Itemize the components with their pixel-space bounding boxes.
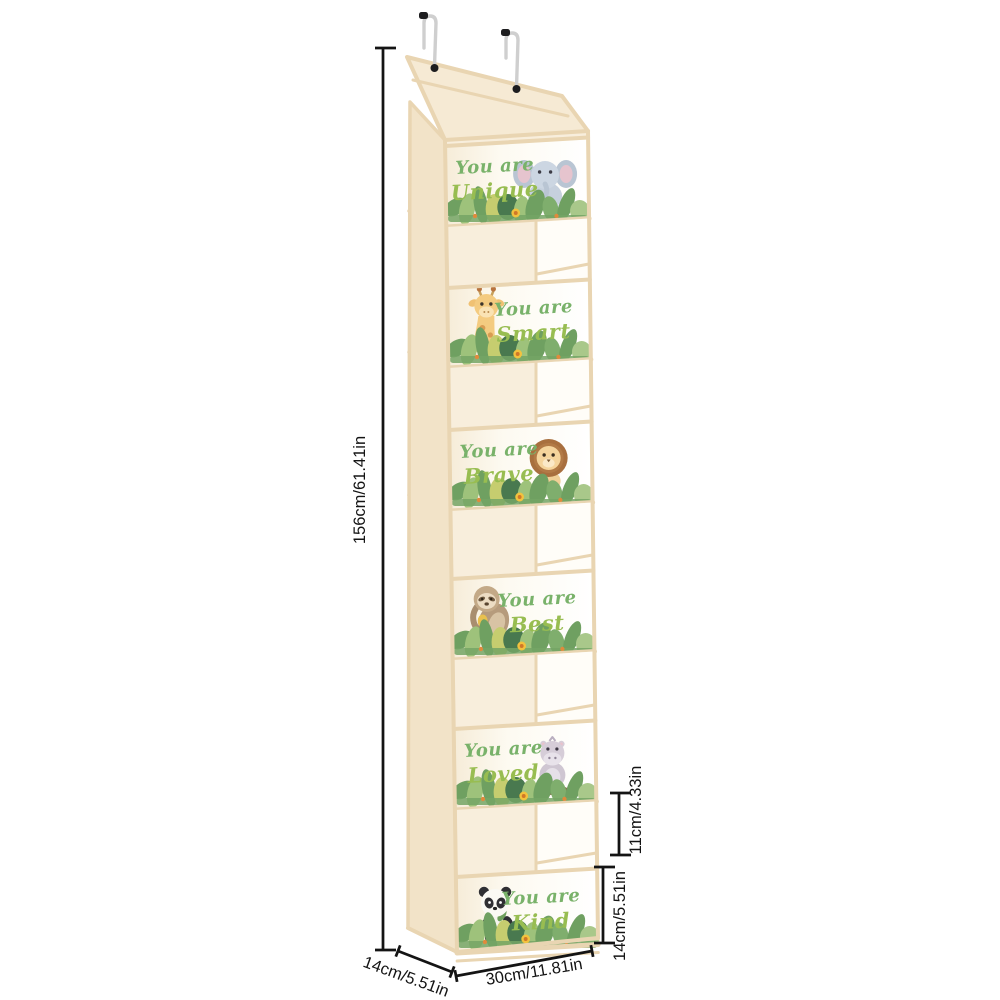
pocket-height-dimension-label: 14cm/5.51in <box>611 871 629 961</box>
pocket-caption-line1: You are <box>464 737 544 762</box>
hook-door-cap <box>501 29 510 36</box>
pocket-gap-dimension-label: 11cm/4.33in <box>627 766 645 855</box>
pocket-caption-line2: Kind <box>510 908 570 936</box>
organizer: You areUniqueYou areSmartYou areBraveYou… <box>407 12 599 961</box>
height-dimension-label: 156cm/61.41in <box>351 436 369 544</box>
depth-dimension-label: 14cm/5.51in <box>361 953 452 1000</box>
product-dimension-diagram: You areUniqueYou areSmartYou areBraveYou… <box>0 0 1000 1000</box>
hook-mount-knob <box>431 64 439 72</box>
pocket-caption-line1: You are <box>459 438 539 463</box>
hook-door-cap <box>419 12 428 19</box>
pocket-caption-line2: Loved <box>466 759 540 788</box>
pocket-caption-line1: You are <box>455 154 535 179</box>
depth-dimension: 14cm/5.51in <box>361 945 455 1000</box>
hook-mount-knob <box>513 85 521 93</box>
frame-back-left-edge <box>408 102 410 928</box>
pocket-caption-line1: You are <box>497 587 577 612</box>
width-dimension-label: 30cm/11.81in <box>484 955 583 989</box>
pocket-caption-line2: Unique <box>450 176 539 206</box>
pocket-caption-line2: Brave <box>462 460 535 489</box>
pocket-gap-dimension: 11cm/4.33in <box>610 766 645 855</box>
height-dimension: 156cm/61.41in <box>351 48 396 950</box>
diagram-canvas: You areUniqueYou areSmartYou areBraveYou… <box>0 0 1000 1000</box>
pocket-caption-line1: You are <box>501 885 581 910</box>
pocket-kind: You areKind <box>451 802 600 962</box>
pocket-caption-line2: Best <box>508 610 565 638</box>
pocket-caption-line1: You are <box>494 296 574 321</box>
hook-wire <box>506 33 518 87</box>
pocket-caption-line2: Smart <box>496 318 571 347</box>
hook-wire <box>424 16 436 66</box>
